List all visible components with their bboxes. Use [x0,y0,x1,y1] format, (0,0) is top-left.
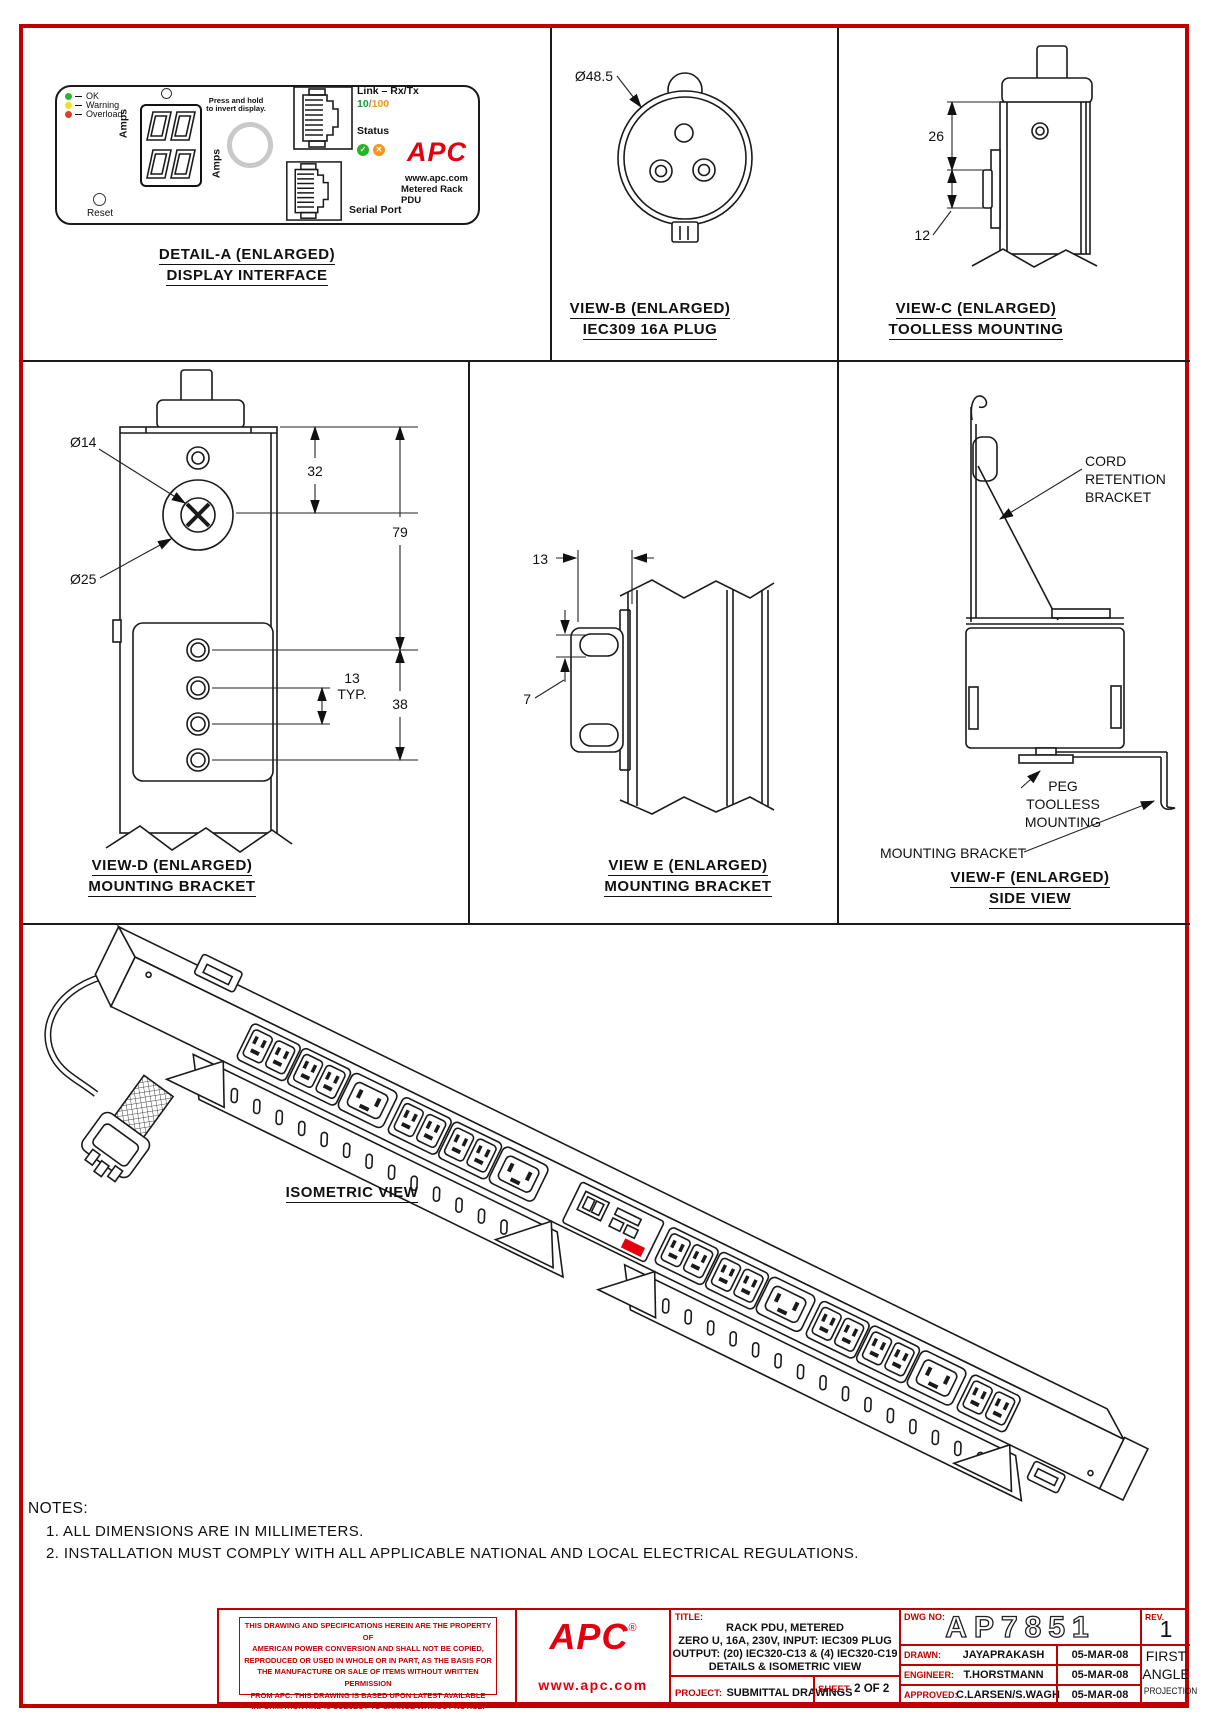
status-ok-icon: ✓ [357,144,369,156]
sheet-value: 2 OF 2 [854,1683,889,1695]
approved-date: 05-MAR-08 [1056,1686,1142,1706]
disclaimer-line5: FROM APC. THIS DRAWING IS BASED UPON LAT… [240,1690,496,1702]
note-item-1: 1. ALL DIMENSIONS ARE IN MILLIMETERS. [46,1523,364,1540]
projection-cell: FIRST ANGLE PROJECTION [1142,1644,1190,1706]
panel-divider-e-f [837,360,839,923]
drawing-title-line3: OUTPUT: (20) IEC320-C13 & (4) IEC320-C19 [671,1648,899,1660]
view-d-title-line1: VIEW-D (ENLARGED) [92,857,253,876]
status-fail-icon: ✕ [373,144,385,156]
serial-port-jack-icon [283,161,345,221]
amps-label-right: Amps [211,144,224,184]
projection-line3: PROJECTION [1144,1686,1188,1696]
engineer-label: ENGINEER: [904,1670,954,1680]
view-d-title-line2: MOUNTING BRACKET [88,878,255,897]
led-legend-overload: Overload [65,110,123,119]
notes-heading: NOTES: [28,1500,88,1518]
apc-url: www.apc.com [405,173,468,184]
disclaimer-line3: REPRODUCED OR USED IN WHOLE OR IN PART, … [240,1655,496,1667]
panel-divider-b-c [837,28,839,360]
note-item-2: 2. INSTALLATION MUST COMPLY WITH ALL APP… [46,1545,859,1562]
warning-led-icon [65,102,72,109]
link-rxtx-label: Link – Rx/Tx [357,85,419,97]
overload-led-icon [65,111,72,118]
amps-label-left: Amps [118,104,131,144]
view-e-title-line2: MOUNTING BRACKET [604,878,771,897]
drawing-title-line1: RACK PDU, METERED [671,1622,899,1634]
apc-logo: APC [549,1616,628,1657]
engineer-name: T.HORSTMANN [956,1669,1051,1681]
rev-value: 1 [1142,1616,1190,1643]
display-interface-faceplate: OK Warning Overload Amps Amps Press [55,85,480,225]
view-f-title-line2: SIDE VIEW [989,890,1071,909]
disclaimer-line2: AMERICAN POWER CONVERSION AND SHALL NOT … [240,1643,496,1655]
engineer-date: 05-MAR-08 [1056,1666,1142,1684]
title-cell: TITLE: RACK PDU, METERED ZERO U, 16A, 23… [669,1610,899,1702]
approved-row: APPROVED: C.LARSEN/S.WAGH 05-MAR-08 [901,1684,1140,1706]
drawn-date: 05-MAR-08 [1056,1646,1142,1664]
mounting-hole [161,88,172,99]
drawing-title-line2: ZERO U, 16A, 230V, INPUT: IEC309 PLUG [671,1635,899,1647]
engineer-row: ENGINEER: T.HORSTMANN 05-MAR-08 [901,1664,1140,1684]
invert-display-button[interactable] [227,122,273,168]
title-block: THIS DRAWING AND SPECIFICATIONS HEREIN A… [217,1608,1188,1704]
seven-segment-digits [142,106,200,185]
press-hold-text-line2: to invert display. [199,105,273,113]
status-label: Status [357,125,389,137]
apc-logo-cell: APC® www.apc.com [515,1610,669,1702]
disclaimer-line1: THIS DRAWING AND SPECIFICATIONS HEREIN A… [240,1620,496,1643]
disclaimer-line6: INFORMATION AND IS SUBJECT TO CHANGE WIT… [240,1701,496,1713]
projection-line1: FIRST [1142,1648,1190,1664]
row-divider-top [23,360,1190,362]
speed-10-label: 10 [357,98,369,110]
view-b-title-line2: IEC309 16A PLUG [583,321,718,340]
sheet-label: SHEET [818,1684,850,1695]
reset-label: Reset [71,208,129,219]
apc-logo: APC [407,139,467,165]
dwg-no-value: AP7851 [901,1611,1140,1645]
drawn-row: DRAWN: JAYAPRAKASH 05-MAR-08 [901,1644,1140,1664]
speed-100-label: 100 [372,98,390,110]
submittal-drawing-sheet: Ø48.5 26 12 [0,0,1214,1717]
detail-a-title-line1: DETAIL-A (ENLARGED) [159,246,335,265]
row-divider-middle [23,923,1190,925]
reset-button[interactable] [93,193,106,206]
disclaimer-line4: THE MANUFACTURE OR SALE OF ITEMS WITHOUT… [240,1666,496,1689]
seven-segment-display [140,104,202,187]
drawing-title-line4: DETAILS & ISOMETRIC VIEW [671,1661,899,1673]
drawing-number-cell: DWG NO: AP7851 DRAWN: JAYAPRAKASH 05-MAR… [899,1610,1140,1702]
view-c-title-line1: VIEW-C (ENLARGED) [896,300,1057,319]
project-label: PROJECT: [675,1688,722,1699]
approved-name: C.LARSEN/S.WAGH [956,1689,1051,1701]
apc-url: www.apc.com [517,1677,669,1693]
revision-cell: REV. 1 FIRST ANGLE PROJECTION [1140,1610,1190,1702]
view-c-title-line2: TOOLLESS MOUNTING [889,321,1064,340]
drawn-name: JAYAPRAKASH [956,1649,1051,1661]
view-b-title-line1: VIEW-B (ENLARGED) [570,300,731,319]
apc-product-name: Metered Rack PDU [401,184,478,206]
approved-label: APPROVED: [904,1690,958,1700]
panel-divider-d-e [468,360,470,923]
projection-line2: ANGLE [1142,1666,1190,1682]
detail-a-title-line2: DISPLAY INTERFACE [166,267,327,286]
drawn-label: DRAWN: [904,1650,941,1660]
serial-port-label: Serial Port [349,204,402,216]
apc-registered-mark: ® [628,1622,636,1634]
network-port-jack-icon [293,86,353,150]
ok-led-icon [65,93,72,100]
view-e-title-line1: VIEW E (ENLARGED) [608,857,767,876]
title-label: TITLE: [675,1612,703,1622]
isometric-view-title: ISOMETRIC VIEW [286,1184,419,1203]
view-f-title-line1: VIEW-F (ENLARGED) [950,869,1109,888]
disclaimer-cell: THIS DRAWING AND SPECIFICATIONS HEREIN A… [219,1610,515,1702]
